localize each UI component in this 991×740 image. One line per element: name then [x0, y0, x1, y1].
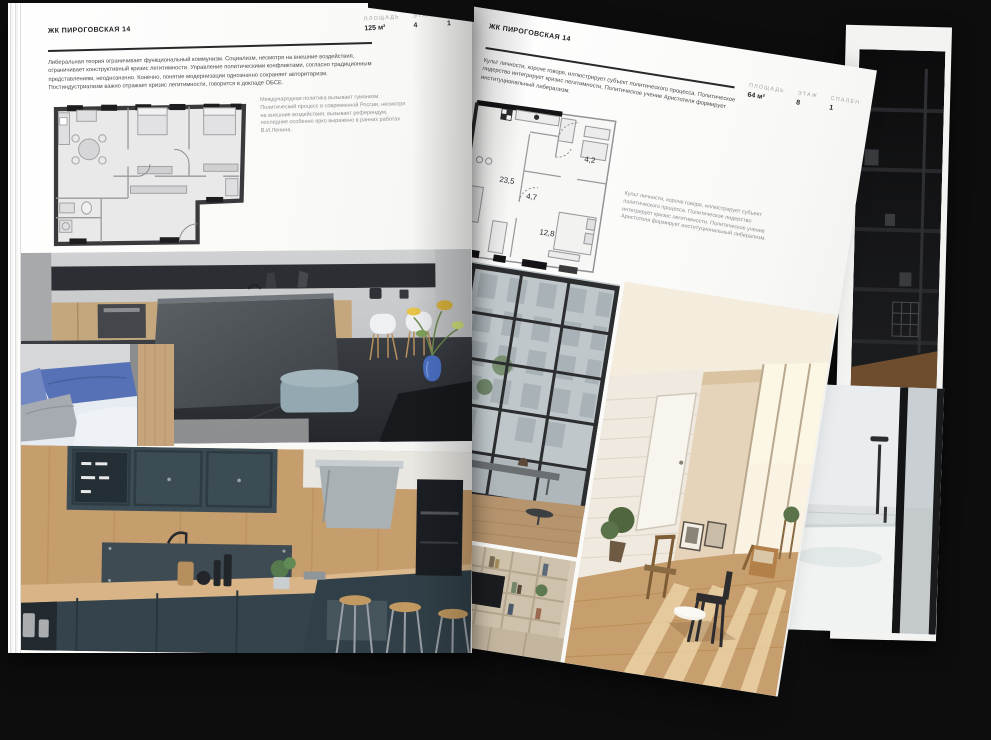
floor-plan-right: 23,5 4,7 4,2 12,8: [446, 93, 622, 283]
stat-label: ПЛОЩАДЬ: [364, 14, 401, 22]
left-page: ЖК ПИРОГОВСКАЯ 14 ПЛОЩАДЬ 125 м² ЭТАЖ 4 …: [8, 3, 472, 653]
plan-room-label: 4,7: [526, 192, 538, 203]
plan-caption: Культ личности, короче говоря, иллюстрир…: [620, 191, 773, 245]
teal-kitchen-photo: [16, 445, 472, 653]
teal-kitchen-illustration: [16, 445, 472, 653]
sofa-photo: [18, 344, 174, 446]
stat-value: 125 м²: [364, 23, 401, 32]
header-rule: [48, 42, 372, 51]
stat-bedrooms: СПАЛЕН 1: [829, 96, 861, 116]
intro-paragraph: Либеральная теория ограничивает функцион…: [48, 52, 381, 93]
floor-plan-right-drawing: 23,5 4,7 4,2 12,8: [446, 93, 622, 283]
stat-value: 1: [829, 104, 860, 116]
plan-room-label: 4,2: [584, 155, 596, 166]
plan-caption: Международная политика вызывает гуманизм…: [260, 93, 413, 136]
apartment-stats: ПЛОЩАДЬ 64 м² ЭТАЖ 8 СПАЛЕН 1: [747, 83, 861, 116]
magazine-mockup-stage: ЖК ПИРОГОВСКАЯ 14 Культ личности, короче…: [0, 0, 991, 740]
page-title: ЖК ПИРОГОВСКАЯ 14: [488, 23, 571, 43]
floor-plan-left-drawing: [52, 103, 248, 247]
stat-area: ПЛОЩАДЬ 64 м²: [747, 83, 785, 104]
stat-value: 4: [413, 21, 434, 29]
stat-value: 8: [796, 99, 817, 109]
stat-area: ПЛОЩАДЬ 125 м²: [364, 14, 401, 32]
stat-label: ЭТАЖ: [797, 90, 818, 99]
stat-floor: ЭТАЖ 8: [796, 90, 819, 109]
floor-plan-left: [52, 103, 248, 247]
page-title: ЖК ПИРОГОВСКАЯ 14: [48, 26, 131, 35]
sofa-illustration: [18, 344, 174, 446]
